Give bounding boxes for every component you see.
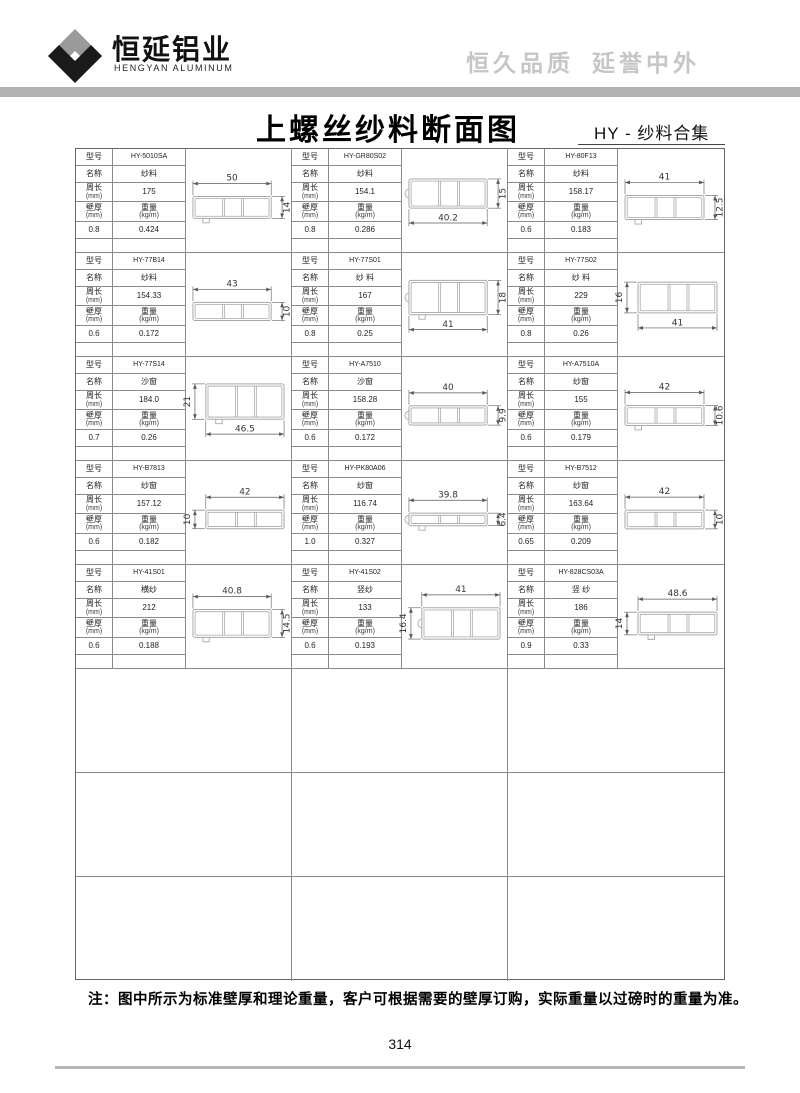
spec-value-weight: 0.183	[545, 222, 617, 239]
spec-label-weight: 重量(kg/m)	[113, 618, 185, 638]
spec-label-model: 型号	[508, 149, 545, 166]
dimension-label: 12.5	[716, 197, 725, 217]
spec-value-model: HY-80F13	[545, 149, 617, 166]
spec-label-model: 型号	[508, 357, 545, 374]
dimension-arrow	[625, 495, 630, 499]
dimension-label: 9.9	[499, 408, 508, 422]
spec-table: 型号HY-77S02名称纱 料周长(mm)229壁厚(mm)重量(kg/m)0.…	[508, 253, 618, 356]
dimension-arrow	[280, 196, 284, 201]
empty-cell	[292, 773, 508, 877]
dimension-arrow	[699, 391, 704, 395]
spec-value-name: 纱窗	[545, 478, 617, 495]
spec-value-model: HY-41S01	[113, 565, 185, 582]
dimension-label: 42	[239, 487, 250, 497]
dimension-arrow	[409, 328, 414, 332]
spec-cell-blank	[76, 239, 113, 252]
page-number: 314	[0, 1036, 800, 1052]
spec-value-thickness: 0.6	[508, 222, 545, 239]
empty-cell	[292, 669, 508, 773]
profile-inner-wall	[411, 515, 485, 523]
dimension-label: 10	[183, 513, 193, 525]
spec-value-weight: 0.172	[113, 326, 185, 343]
spec-label-perimeter: 周长(mm)	[76, 495, 113, 514]
spec-value-perimeter: 154.33	[113, 287, 185, 306]
spec-value-weight: 0.209	[545, 534, 617, 551]
dimension-label: 10.6	[716, 405, 725, 425]
dimension-arrow	[625, 181, 630, 185]
header-divider-bar	[0, 87, 800, 97]
spec-label-perimeter: 周长(mm)	[292, 183, 329, 202]
spec-label-model: 型号	[76, 253, 113, 270]
dimension-arrow	[193, 414, 197, 419]
dimension-arrow	[193, 182, 198, 186]
profile-hook	[419, 315, 425, 319]
dimension-arrow	[280, 213, 284, 218]
spec-label-name: 名称	[292, 166, 329, 183]
profile-hook	[203, 218, 209, 222]
spec-cell-blank	[292, 343, 329, 356]
dimension-label: 40.8	[222, 587, 242, 597]
profile-drawing: 48.614	[618, 565, 724, 668]
spec-label-thickness: 壁厚(mm)	[292, 202, 329, 222]
slogan-left: 恒久品质	[466, 44, 574, 78]
spec-label-model: 型号	[292, 149, 329, 166]
spec-cell-blank	[329, 239, 401, 252]
profile-drawing: 5014	[186, 149, 291, 252]
profile-drawing: 4210.6	[618, 357, 724, 460]
profile-hook	[635, 425, 642, 430]
empty-cell	[508, 773, 724, 877]
profile-drawing-area: 4210.6	[618, 357, 724, 460]
dimension-arrow	[482, 328, 487, 332]
spec-label-perimeter: 周长(mm)	[508, 391, 545, 410]
spec-value-weight: 0.182	[113, 534, 185, 551]
spec-label-weight: 重量(kg/m)	[113, 514, 185, 534]
dimension-arrow	[193, 595, 198, 599]
spec-table: 型号HY-77S14名称沙窗周长(mm)184.0壁厚(mm)重量(kg/m)0…	[76, 357, 186, 460]
dimension-label: 41	[455, 585, 466, 595]
profile-inner-wall	[195, 305, 269, 319]
spec-label-thickness: 壁厚(mm)	[76, 410, 113, 430]
spec-table: 型号HY-828CS03A名称竖 纱周长(mm)186壁厚(mm)重量(kg/m…	[508, 565, 618, 668]
profile-cell: 型号HY-GR80S02名称纱料周长(mm)154.1壁厚(mm)重量(kg/m…	[292, 149, 508, 253]
dimension-arrow	[409, 608, 413, 613]
spec-label-model: 型号	[508, 565, 545, 582]
profile-inner-wall	[424, 610, 498, 637]
profile-inner-wall	[627, 408, 702, 424]
spec-value-model: HY-B7512	[545, 461, 617, 478]
profile-outline	[625, 195, 704, 219]
spec-value-weight: 0.26	[545, 326, 617, 343]
empty-cell	[76, 773, 292, 877]
dimension-arrow	[496, 179, 500, 184]
profile-outline	[409, 406, 487, 425]
dimension-arrow	[496, 310, 500, 315]
dimension-arrow	[625, 612, 629, 617]
dimension-arrow	[266, 288, 271, 292]
spec-table: 型号HY-PK80A06名称纱窗周长(mm)116.74壁厚(mm)重量(kg/…	[292, 461, 402, 564]
spec-cell-blank	[508, 239, 545, 252]
profile-drawing-area: 4210	[618, 461, 724, 564]
profile-drawing-area: 40.814.5	[186, 565, 291, 668]
spec-value-name: 沙窗	[113, 374, 185, 391]
spec-table: 型号HY-B7813名称纱窗周长(mm)157.12壁厚(mm)重量(kg/m)…	[76, 461, 186, 564]
dimension-arrow	[712, 597, 717, 601]
profile-drawing: 46.521	[186, 357, 291, 460]
spec-label-perimeter: 周长(mm)	[76, 599, 113, 618]
spec-label-weight: 重量(kg/m)	[329, 202, 401, 222]
profile-outline	[193, 302, 271, 320]
dimension-label: 40	[442, 383, 454, 393]
profile-drawing: 4310	[186, 253, 291, 356]
dimension-label: 42	[659, 383, 670, 393]
dimension-arrow	[496, 203, 500, 208]
profile-outline	[638, 612, 717, 635]
dimension-arrow	[279, 432, 284, 436]
spec-label-model: 型号	[76, 461, 113, 478]
footer-divider-bar	[55, 1066, 745, 1069]
profile-drawing: 39.86.4	[402, 461, 507, 564]
spec-value-weight: 0.25	[329, 326, 401, 343]
spec-value-name: 沙窗	[329, 374, 401, 391]
page-title: 上螺丝纱料断面图	[256, 105, 520, 149]
profile-drawing: 4210	[618, 461, 724, 564]
dimension-label: 10	[716, 514, 725, 526]
spec-value-name: 纱料	[329, 166, 401, 183]
company-name: 恒延铝业	[112, 28, 232, 68]
spec-label-name: 名称	[76, 374, 113, 391]
spec-label-model: 型号	[508, 253, 545, 270]
footer-note: 注：图中所示为标准壁厚和理论重量，客户可根据需要的壁厚订购，实际重量以过磅时的重…	[88, 988, 748, 1009]
profile-inner-wall	[208, 512, 282, 526]
spec-value-perimeter: 158.28	[329, 391, 401, 410]
spec-label-name: 名称	[76, 478, 113, 495]
profile-drawing-area: 409.9	[402, 357, 507, 460]
spec-cell-blank	[113, 655, 185, 668]
profile-outline	[206, 510, 284, 529]
spec-value-model: HY-77S01	[329, 253, 401, 270]
spec-cell-blank	[76, 343, 113, 356]
profile-drawing-area: 39.86.4	[402, 461, 507, 564]
profile-hook	[635, 220, 642, 225]
spec-table: 型号HY-41S01名称横纱周长(mm)212壁厚(mm)重量(kg/m)0.6…	[76, 565, 186, 668]
spec-value-perimeter: 154.1	[329, 183, 401, 202]
dimension-label: 6.4	[499, 512, 508, 526]
profile-hook	[216, 419, 222, 423]
spec-label-model: 型号	[76, 565, 113, 582]
spec-value-thickness: 0.8	[508, 326, 545, 343]
spec-value-model: HY-77S14	[113, 357, 185, 374]
dimension-arrow	[409, 221, 414, 225]
dimension-arrow	[625, 630, 629, 635]
spec-label-perimeter: 周长(mm)	[292, 495, 329, 514]
spec-label-thickness: 壁厚(mm)	[508, 514, 545, 534]
spec-value-thickness: 0.8	[292, 326, 329, 343]
profile-inner-wall	[195, 199, 269, 217]
spec-value-name: 竖 纱	[545, 582, 617, 599]
profile-cell: 型号HY-77S02名称纱 料周长(mm)229壁厚(mm)重量(kg/m)0.…	[508, 253, 724, 357]
spec-cell-blank	[113, 343, 185, 356]
spec-label-name: 名称	[508, 270, 545, 287]
spec-label-weight: 重量(kg/m)	[545, 306, 617, 326]
dimension-arrow	[699, 495, 704, 499]
dimension-arrow	[193, 524, 197, 529]
spec-value-model: HY-5010SA	[113, 149, 185, 166]
spec-label-thickness: 壁厚(mm)	[76, 514, 113, 534]
spec-cell-blank	[113, 551, 185, 564]
spec-value-perimeter: 229	[545, 287, 617, 306]
dimension-arrow	[482, 498, 487, 502]
spec-value-perimeter: 133	[329, 599, 401, 618]
profile-cell: 型号HY-77S01名称纱 料周长(mm)167壁厚(mm)重量(kg/m)0.…	[292, 253, 508, 357]
dimension-arrow	[625, 282, 629, 287]
spec-table: 型号HY-41S02名称竖纱周长(mm)133壁厚(mm)重量(kg/m)0.6…	[292, 565, 402, 668]
spec-label-thickness: 壁厚(mm)	[76, 306, 113, 326]
profile-inner-wall	[208, 386, 282, 417]
profile-outline	[422, 608, 500, 639]
dimension-label: 42	[659, 487, 670, 497]
dimension-label: 14.5	[283, 614, 292, 634]
spec-label-name: 名称	[508, 166, 545, 183]
dimension-label: 21	[183, 396, 193, 407]
profile-grid: 型号HY-5010SA名称纱料周长(mm)175壁厚(mm)重量(kg/m)0.…	[75, 148, 725, 980]
profile-inner-wall	[640, 614, 715, 632]
empty-cell	[508, 669, 724, 773]
spec-cell-blank	[76, 655, 113, 668]
dimension-label: 40.2	[438, 214, 458, 224]
dimension-label: 41	[442, 320, 453, 330]
spec-label-name: 名称	[292, 582, 329, 599]
dimension-arrow	[206, 495, 211, 499]
spec-value-thickness: 0.6	[508, 430, 545, 447]
spec-label-weight: 重量(kg/m)	[545, 410, 617, 430]
spec-cell-blank	[329, 447, 401, 460]
spec-value-name: 纱 料	[545, 270, 617, 287]
spec-value-perimeter: 163.64	[545, 495, 617, 514]
spec-value-thickness: 0.8	[292, 222, 329, 239]
spec-label-perimeter: 周长(mm)	[292, 599, 329, 618]
spec-value-model: HY-77S02	[545, 253, 617, 270]
profile-drawing-area: 4210	[186, 461, 291, 564]
spec-cell-blank	[545, 551, 617, 564]
spec-cell-blank	[508, 655, 545, 668]
spec-label-thickness: 壁厚(mm)	[76, 202, 113, 222]
spec-value-perimeter: 175	[113, 183, 185, 202]
dimension-arrow	[409, 634, 413, 639]
spec-label-thickness: 壁厚(mm)	[292, 514, 329, 534]
spec-label-model: 型号	[76, 149, 113, 166]
spec-label-perimeter: 周长(mm)	[292, 287, 329, 306]
spec-cell-blank	[508, 551, 545, 564]
spec-label-thickness: 壁厚(mm)	[508, 618, 545, 638]
spec-table: 型号HY-5010SA名称纱料周长(mm)175壁厚(mm)重量(kg/m)0.…	[76, 149, 186, 252]
spec-cell-blank	[292, 239, 329, 252]
spec-label-model: 型号	[292, 565, 329, 582]
dimension-arrow	[699, 181, 704, 185]
profile-drawing: 4112.5	[618, 149, 724, 252]
profile-outline	[193, 610, 271, 638]
dimension-label: 10	[283, 305, 292, 317]
spec-label-name: 名称	[292, 270, 329, 287]
profile-drawing: 4118	[402, 253, 507, 356]
spec-value-weight: 0.26	[113, 430, 185, 447]
dimension-arrow	[482, 391, 487, 395]
spec-label-weight: 重量(kg/m)	[113, 202, 185, 222]
spec-value-weight: 0.286	[329, 222, 401, 239]
profile-hook	[648, 635, 655, 640]
spec-label-name: 名称	[292, 374, 329, 391]
spec-value-model: HY-A7510A	[545, 357, 617, 374]
spec-cell-blank	[76, 551, 113, 564]
profile-drawing-area: 4310	[186, 253, 291, 356]
spec-label-perimeter: 周长(mm)	[292, 391, 329, 410]
spec-value-model: HY-77B14	[113, 253, 185, 270]
spec-label-weight: 重量(kg/m)	[545, 618, 617, 638]
spec-label-thickness: 壁厚(mm)	[292, 306, 329, 326]
dimension-arrow	[206, 432, 211, 436]
spec-cell-blank	[508, 447, 545, 460]
dimension-arrow	[712, 326, 717, 330]
dimension-label: 14	[615, 618, 625, 630]
dimension-label: 41	[659, 172, 670, 182]
spec-value-name: 纱窗	[545, 374, 617, 391]
profile-drawing-area: 4116.4	[402, 565, 507, 668]
profile-cell: 型号HY-A7510名称沙窗周长(mm)158.28壁厚(mm)重量(kg/m)…	[292, 357, 508, 461]
spec-cell-blank	[292, 655, 329, 668]
spec-value-weight: 0.179	[545, 430, 617, 447]
profile-drawing: 4210	[186, 461, 291, 564]
slogan-right: 延誉中外	[592, 44, 700, 78]
spec-value-perimeter: 184.0	[113, 391, 185, 410]
spec-label-model: 型号	[292, 253, 329, 270]
spec-label-weight: 重量(kg/m)	[545, 514, 617, 534]
spec-value-perimeter: 186	[545, 599, 617, 618]
empty-cell	[292, 877, 508, 981]
spec-label-model: 型号	[76, 357, 113, 374]
profile-drawing-area: 46.521	[186, 357, 291, 460]
profile-inner-wall	[411, 181, 485, 206]
dimension-arrow	[625, 308, 629, 313]
spec-cell-blank	[508, 343, 545, 356]
dimension-arrow	[422, 593, 427, 597]
spec-value-perimeter: 116.74	[329, 495, 401, 514]
spec-label-thickness: 壁厚(mm)	[508, 410, 545, 430]
profile-inner-wall	[627, 512, 702, 526]
spec-value-name: 纱料	[545, 166, 617, 183]
spec-cell-blank	[329, 551, 401, 564]
dimension-label: 14	[283, 201, 292, 213]
dimension-label: 16	[615, 292, 625, 304]
spec-label-thickness: 壁厚(mm)	[76, 618, 113, 638]
spec-value-name: 纱窗	[113, 478, 185, 495]
spec-value-weight: 0.33	[545, 638, 617, 655]
spec-value-perimeter: 157.12	[113, 495, 185, 514]
dimension-arrow	[409, 498, 414, 502]
dimension-arrow	[409, 391, 414, 395]
spec-label-name: 名称	[508, 374, 545, 391]
profile-inner-wall	[411, 283, 485, 313]
spec-cell-blank	[329, 655, 401, 668]
spec-value-name: 横纱	[113, 582, 185, 599]
spec-value-thickness: 0.6	[292, 638, 329, 655]
profile-outline	[206, 384, 284, 419]
spec-label-perimeter: 周长(mm)	[508, 287, 545, 306]
spec-label-name: 名称	[292, 478, 329, 495]
profile-outline	[638, 282, 717, 313]
spec-table: 型号HY-77B14名称纱料周长(mm)154.33壁厚(mm)重量(kg/m)…	[76, 253, 186, 356]
dimension-label: 16.4	[399, 613, 409, 633]
dimension-label: 39.8	[438, 490, 458, 500]
spec-table: 型号HY-GR80S02名称纱料周长(mm)154.1壁厚(mm)重量(kg/m…	[292, 149, 402, 252]
spec-cell-blank	[545, 343, 617, 356]
spec-value-perimeter: 212	[113, 599, 185, 618]
spec-label-thickness: 壁厚(mm)	[292, 410, 329, 430]
dimension-label: 41	[672, 318, 683, 328]
spec-value-thickness: 0.65	[508, 534, 545, 551]
profile-cell: 型号HY-828CS03A名称竖 纱周长(mm)186壁厚(mm)重量(kg/m…	[508, 565, 724, 669]
profile-cell: 型号HY-B7512名称纱窗周长(mm)163.64壁厚(mm)重量(kg/m)…	[508, 461, 724, 565]
spec-label-model: 型号	[508, 461, 545, 478]
profile-drawing-area: 40.215	[402, 149, 507, 252]
profile-outline	[409, 280, 487, 314]
spec-value-perimeter: 158.17	[545, 183, 617, 202]
spec-label-weight: 重量(kg/m)	[113, 410, 185, 430]
dimension-arrow	[193, 384, 197, 389]
profile-cell: 型号HY-B7813名称纱窗周长(mm)157.12壁厚(mm)重量(kg/m)…	[76, 461, 292, 565]
profile-drawing: 40.814.5	[186, 565, 291, 668]
spec-value-model: HY-A7510	[329, 357, 401, 374]
spec-value-name: 纱窗	[329, 478, 401, 495]
profile-outline	[625, 406, 704, 426]
spec-value-thickness: 0.8	[76, 222, 113, 239]
spec-cell-blank	[329, 343, 401, 356]
profile-drawing: 4116	[618, 253, 724, 356]
company-logo-icon	[44, 26, 106, 86]
spec-label-thickness: 壁厚(mm)	[508, 306, 545, 326]
empty-cell	[76, 669, 292, 773]
dimension-label: 48.6	[667, 589, 687, 599]
profile-inner-wall	[195, 612, 269, 635]
spec-value-thickness: 0.6	[76, 534, 113, 551]
company-name-en: HENGYAN ALUMINUM	[114, 63, 233, 73]
dimension-label: 18	[499, 292, 508, 304]
spec-cell-blank	[545, 447, 617, 460]
spec-label-perimeter: 周长(mm)	[76, 391, 113, 410]
spec-label-name: 名称	[508, 478, 545, 495]
dimension-arrow	[638, 326, 643, 330]
spec-value-weight: 0.188	[113, 638, 185, 655]
spec-label-name: 名称	[76, 582, 113, 599]
profile-cell: 型号HY-A7510A名称纱窗周长(mm)155壁厚(mm)重量(kg/m)0.…	[508, 357, 724, 461]
dimension-arrow	[496, 280, 500, 285]
dimension-label: 43	[226, 279, 237, 289]
dimension-arrow	[266, 182, 271, 186]
spec-value-name: 纱 料	[329, 270, 401, 287]
profile-cell: 型号HY-41S02名称竖纱周长(mm)133壁厚(mm)重量(kg/m)0.6…	[292, 565, 508, 669]
spec-value-weight: 0.172	[329, 430, 401, 447]
spec-value-model: HY-PK80A06	[329, 461, 401, 478]
profile-inner-wall	[627, 198, 702, 218]
profile-drawing: 40.215	[402, 149, 507, 252]
spec-label-perimeter: 周长(mm)	[508, 183, 545, 202]
dimension-arrow	[495, 593, 500, 597]
dimension-label: 15	[499, 188, 508, 199]
spec-label-name: 名称	[76, 270, 113, 287]
profile-inner-wall	[411, 408, 485, 423]
spec-table: 型号HY-80F13名称纱料周长(mm)158.17壁厚(mm)重量(kg/m)…	[508, 149, 618, 252]
spec-label-perimeter: 周长(mm)	[508, 495, 545, 514]
spec-value-name: 竖纱	[329, 582, 401, 599]
